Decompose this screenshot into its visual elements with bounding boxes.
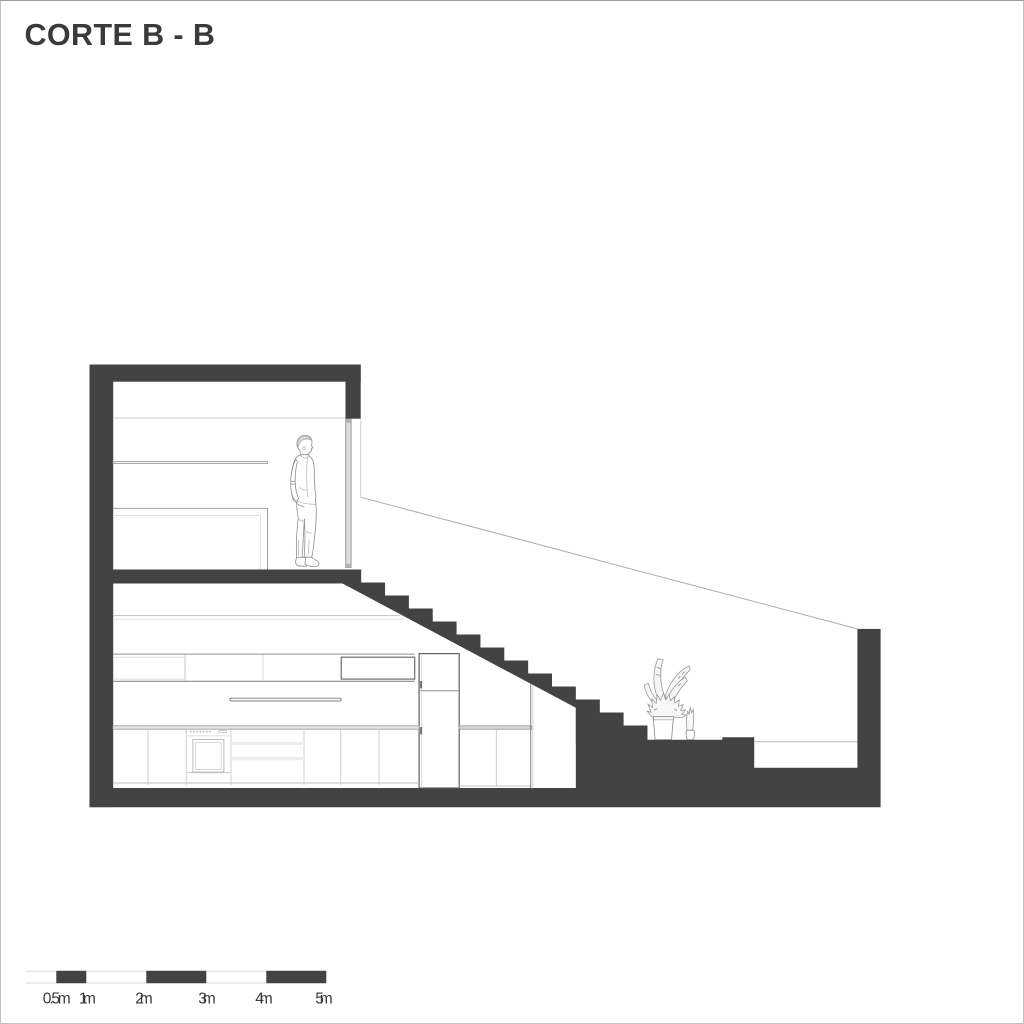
svg-text:3m: 3m xyxy=(198,990,215,1007)
svg-text:4m: 4m xyxy=(255,990,272,1007)
svg-text:5m: 5m xyxy=(315,990,332,1007)
svg-text:0.5m: 0.5m xyxy=(43,990,71,1007)
svg-text:2m: 2m xyxy=(135,990,152,1007)
svg-text:1m: 1m xyxy=(79,990,96,1007)
svg-text:CORTE B - B: CORTE B - B xyxy=(25,18,216,52)
